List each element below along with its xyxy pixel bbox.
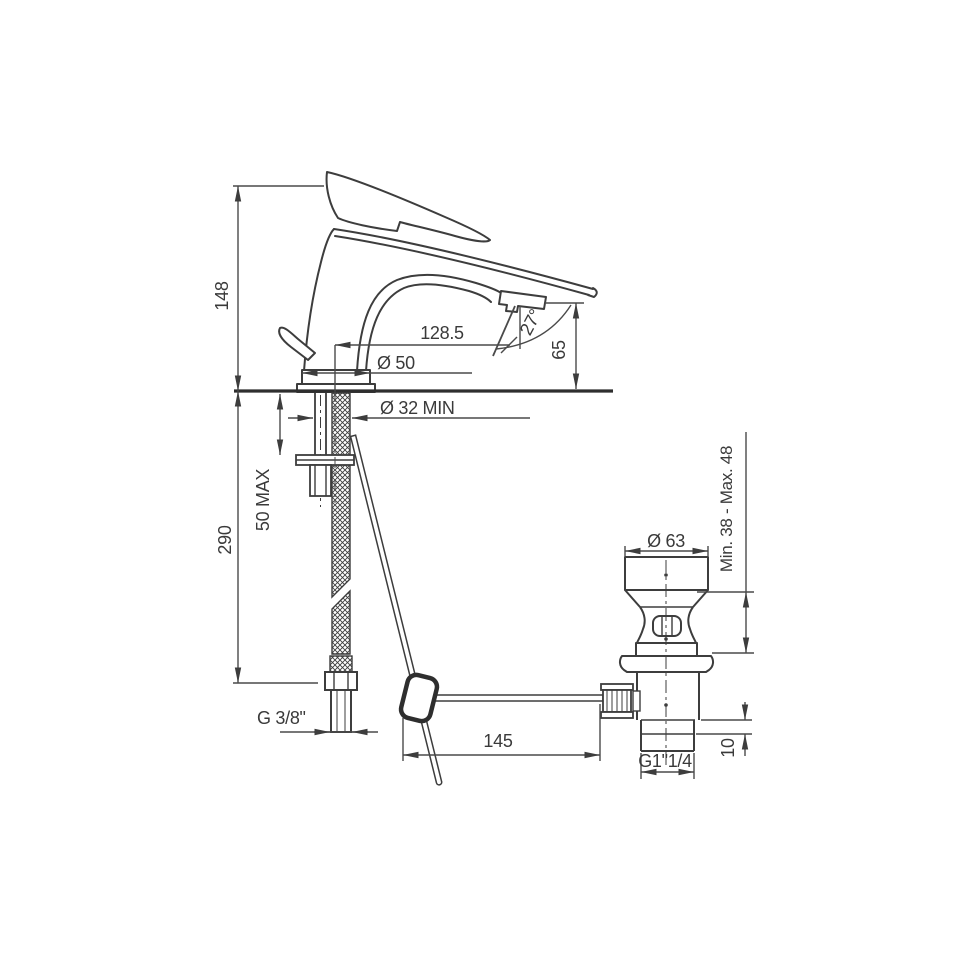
dim-waste-flange-diameter: Ø 63 (647, 531, 685, 551)
dim-spout-reach: 128.5 (420, 323, 464, 343)
dim-spout-height: 65 (549, 340, 569, 360)
technical-drawing-page: 148 290 50 MAX 128.5 27° 65 Ø 50 Ø 32 MI… (0, 0, 970, 970)
dim-deck-thickness-max: 50 MAX (253, 469, 273, 532)
knurled-nut (601, 684, 633, 690)
dim-basin-clamp-range: Min. 38 - Max. 48 (717, 446, 736, 572)
popup-knob (279, 328, 315, 360)
rod-clamp (399, 673, 439, 723)
waste-slot (653, 616, 681, 636)
dim-supply-thread: G 3/8" (257, 708, 306, 728)
faucet-dimension-drawing: 148 290 50 MAX 128.5 27° 65 Ø 50 Ø 32 MI… (0, 0, 970, 970)
mounting-nut (310, 465, 331, 496)
supply-hose-assembly (296, 393, 357, 732)
horizontal-rod (432, 695, 603, 701)
dim-tail-length: 10 (718, 738, 738, 758)
hose-nut (325, 672, 357, 690)
dim-height-below-deck: 290 (215, 525, 235, 554)
dim-base-diameter: Ø 50 (377, 353, 415, 373)
faucet-base-plate (302, 370, 370, 384)
spout-outlet (499, 291, 546, 312)
dim-hole-diameter: Ø 32 MIN (380, 398, 455, 418)
dim-height-total: 148 (212, 281, 232, 310)
hose-thread-end (331, 690, 351, 732)
dim-waste-thread: G1"1/4 (638, 751, 692, 771)
dim-rod-length: 145 (483, 731, 512, 751)
